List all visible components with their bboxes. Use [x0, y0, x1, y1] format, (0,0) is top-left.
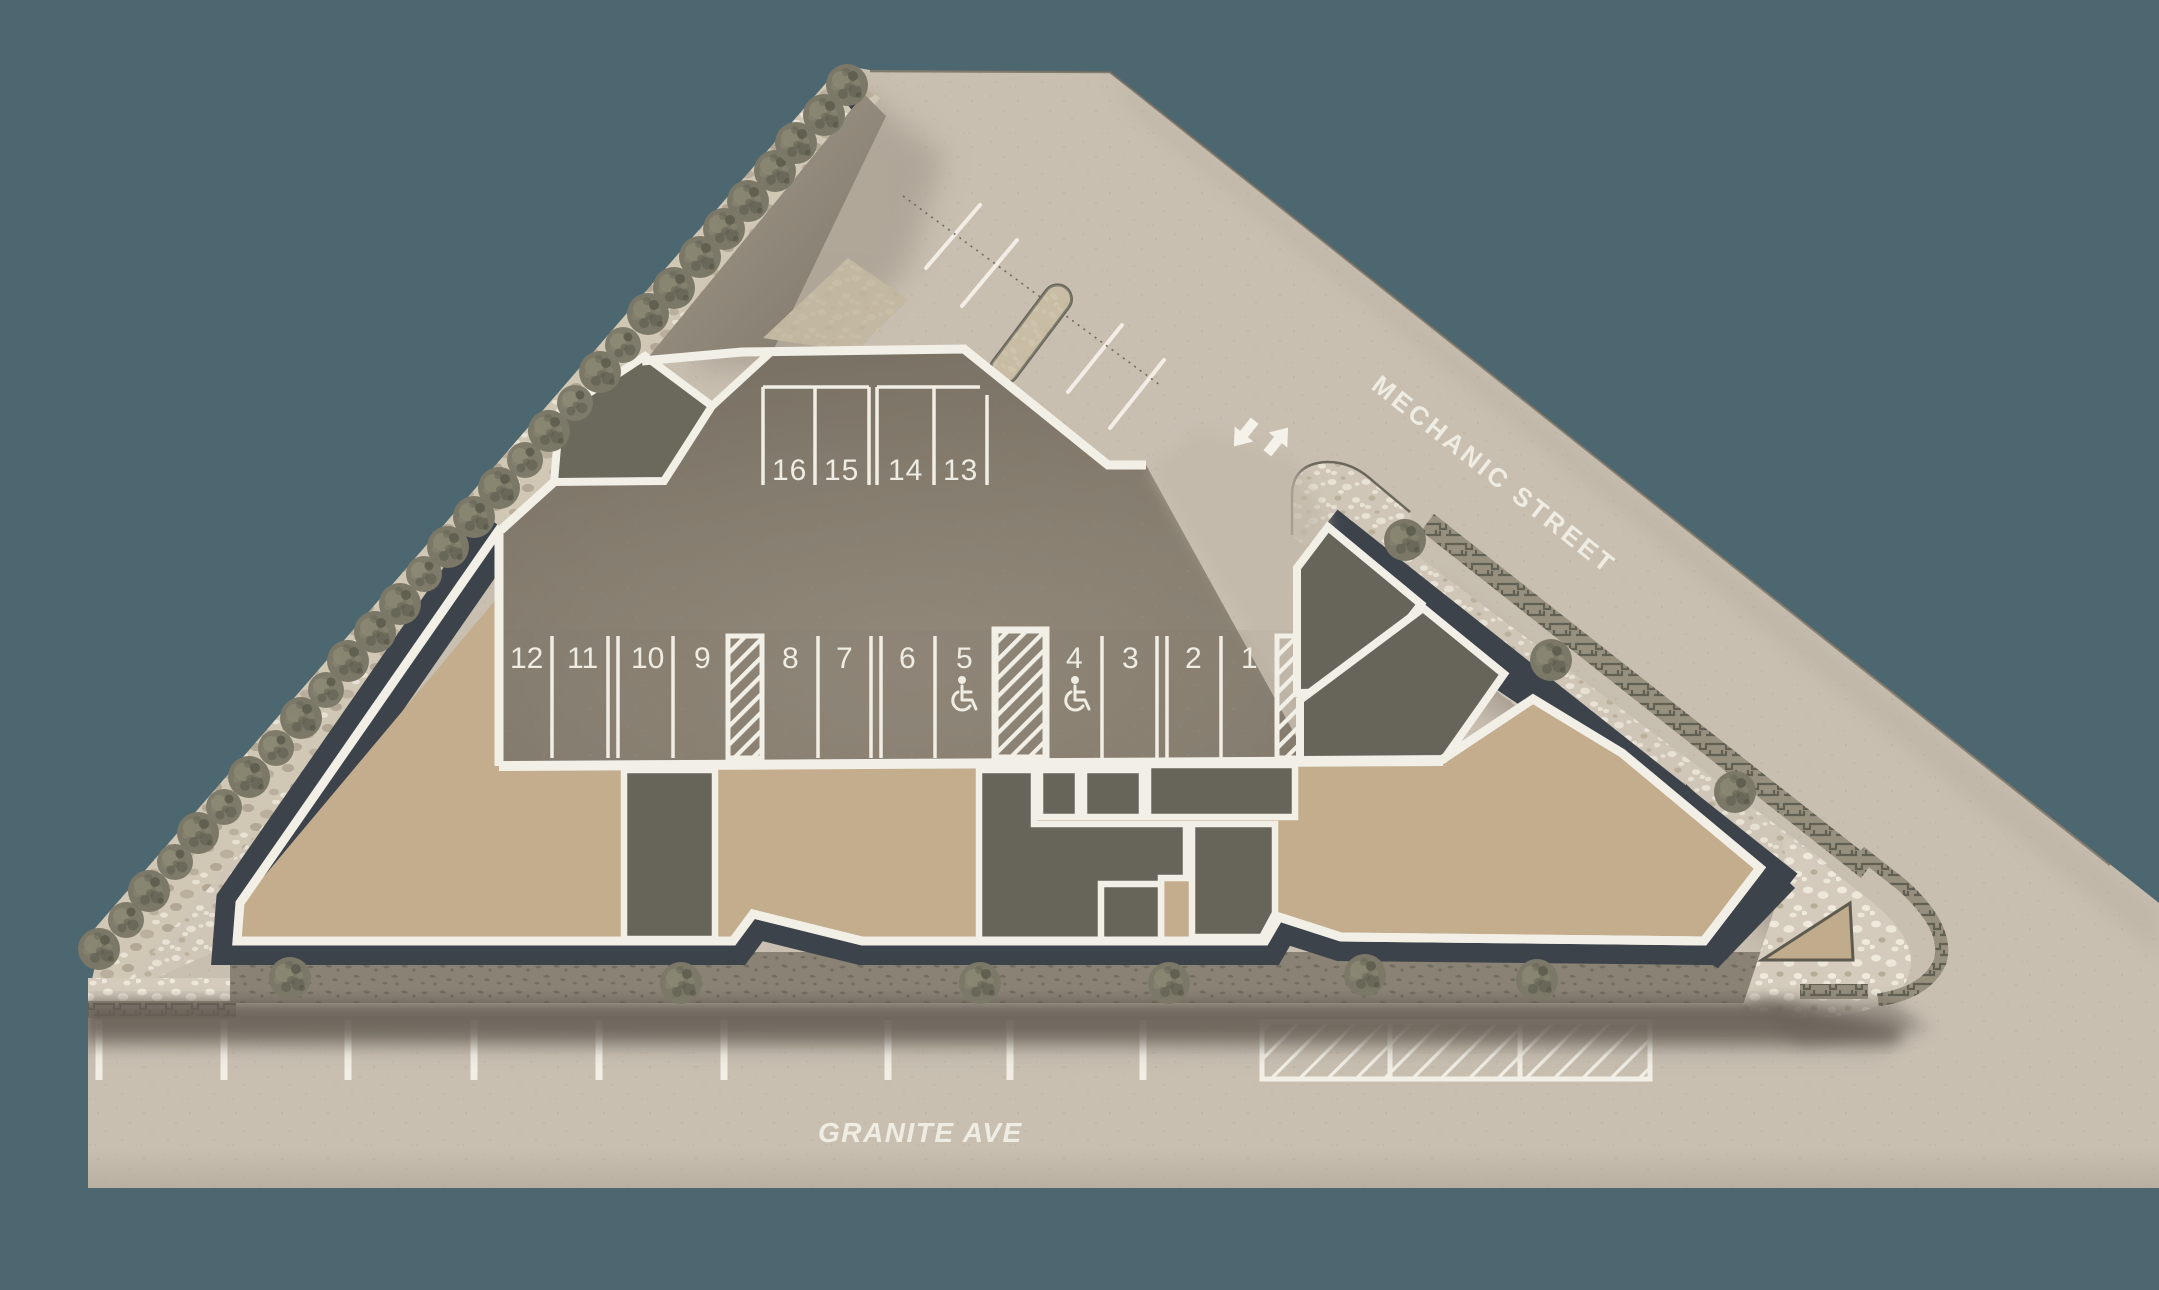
- svg-text:4: 4: [1066, 642, 1083, 675]
- svg-text:3: 3: [1122, 642, 1139, 675]
- svg-text:14: 14: [888, 454, 923, 487]
- svg-text:2: 2: [1185, 642, 1202, 675]
- svg-text:16: 16: [772, 454, 807, 487]
- svg-text:7: 7: [836, 642, 853, 675]
- svg-text:1: 1: [1241, 642, 1258, 675]
- svg-text:9: 9: [694, 642, 711, 675]
- svg-text:6: 6: [899, 642, 916, 675]
- svg-text:11: 11: [567, 642, 598, 675]
- svg-text:15: 15: [824, 454, 859, 487]
- svg-text:5: 5: [956, 642, 973, 675]
- svg-text:13: 13: [943, 454, 978, 487]
- svg-text:10: 10: [631, 642, 664, 675]
- svg-text:12: 12: [510, 642, 543, 675]
- svg-text:8: 8: [782, 642, 799, 675]
- svg-text:GRANITE AVE: GRANITE AVE: [818, 1117, 1023, 1148]
